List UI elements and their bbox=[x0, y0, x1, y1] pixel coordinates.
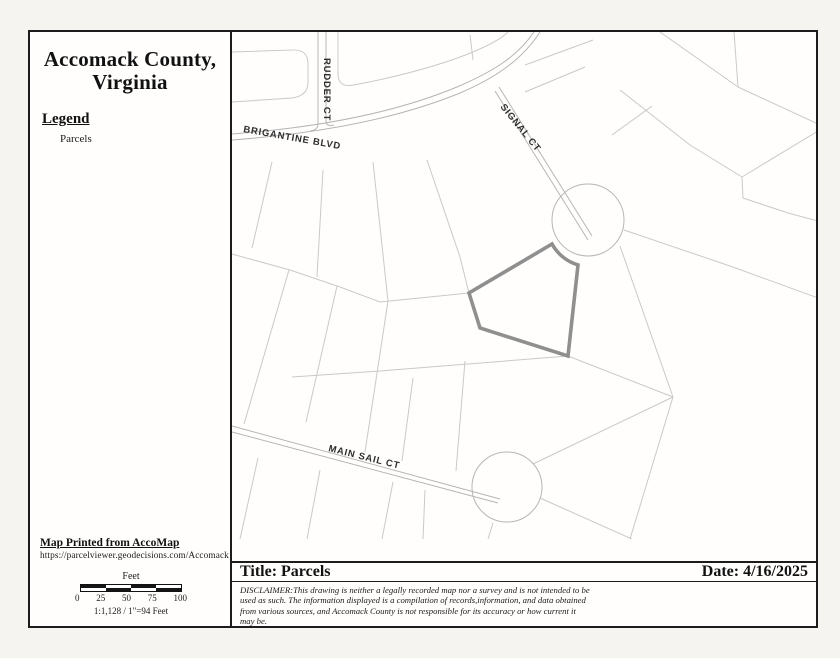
signal-ct-cul-de-sac bbox=[552, 184, 624, 256]
printed-from-url: https://parcelviewer.geodecisions.com/Ac… bbox=[40, 551, 222, 561]
parcel-map: RUDDER CT BRIGANTINE BLVD SIGNAL CT MAIN… bbox=[232, 32, 816, 563]
info-panel: Accomack County, Virginia Legend Parcels… bbox=[30, 32, 232, 626]
scale-bar-bottom-row bbox=[81, 588, 181, 591]
printed-from-link: Map Printed from AccoMap bbox=[40, 537, 222, 549]
map-title-text: Title: Parcels bbox=[240, 563, 331, 581]
page-title: Accomack County, Virginia bbox=[30, 48, 230, 93]
scale-tick: 50 bbox=[122, 593, 131, 603]
main-sail-ct-cul-de-sac bbox=[472, 452, 542, 522]
scale-bar bbox=[80, 584, 182, 592]
scale-unit-label: Feet bbox=[66, 571, 196, 582]
parcel-map-canvas: RUDDER CT BRIGANTINE BLVD SIGNAL CT MAIN… bbox=[232, 32, 816, 539]
scale-tick: 0 bbox=[75, 593, 80, 603]
title-row: Title: Parcels Date: 4/16/2025 bbox=[232, 563, 816, 582]
scale-tick: 75 bbox=[148, 593, 157, 603]
page-title-line1: Accomack County, bbox=[30, 48, 230, 71]
legend-heading: Legend bbox=[42, 111, 230, 128]
scale-ticks: 0 25 50 75 100 bbox=[75, 593, 187, 603]
scale-tick: 25 bbox=[96, 593, 105, 603]
map-column: RUDDER CT BRIGANTINE BLVD SIGNAL CT MAIN… bbox=[232, 32, 816, 626]
selected-parcel-outline bbox=[469, 244, 578, 356]
scale-ratio-text: 1:1,128 / 1"=94 Feet bbox=[66, 606, 196, 616]
disclaimer-text: DISCLAIMER:This drawing is neither a leg… bbox=[232, 582, 600, 630]
printed-map-page: Accomack County, Virginia Legend Parcels… bbox=[28, 30, 818, 628]
scale-tick: 100 bbox=[174, 593, 188, 603]
scale-bar-block: Feet 0 25 50 75 100 1:1,128 / 1"=94 bbox=[66, 571, 196, 616]
legend-item-parcels: Parcels bbox=[60, 133, 230, 145]
print-source-block: Map Printed from AccoMap https://parcelv… bbox=[30, 537, 230, 626]
title-bar: Title: Parcels Date: 4/16/2025 DISCLAIME… bbox=[232, 563, 816, 626]
road-label-signal-ct: SIGNAL CT bbox=[498, 102, 543, 154]
page-title-line2: Virginia bbox=[30, 71, 230, 94]
road-label-rudder-ct: RUDDER CT bbox=[321, 58, 332, 121]
map-date-text: Date: 4/16/2025 bbox=[702, 563, 808, 581]
road-labels: RUDDER CT BRIGANTINE BLVD SIGNAL CT MAIN… bbox=[242, 58, 542, 472]
